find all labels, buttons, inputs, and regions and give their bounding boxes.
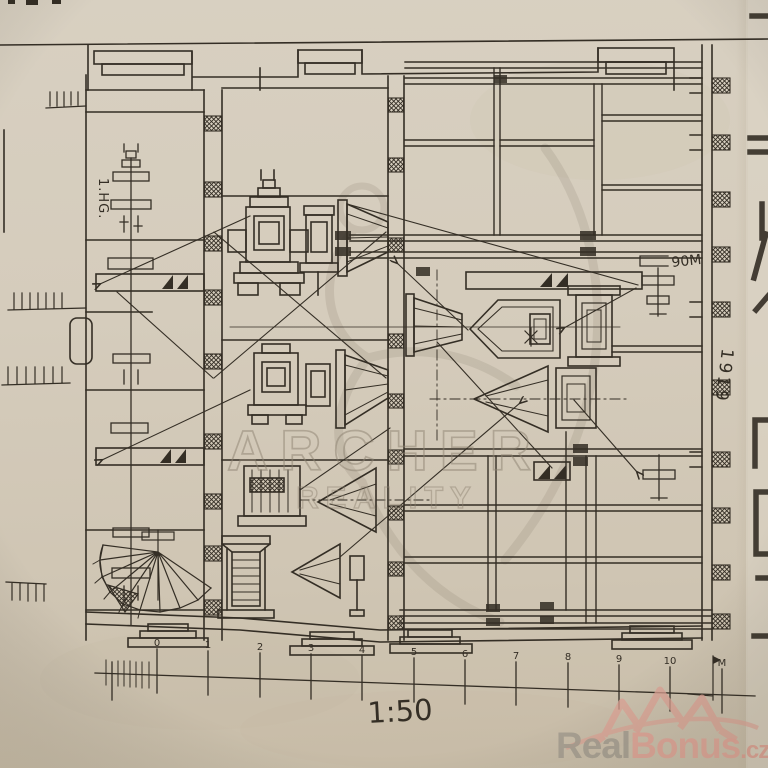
blueprint-svg: 1.HG. 90M 1919 1:50 0 1 2 3 4 5 6 7 8 9 … bbox=[0, 0, 768, 768]
photo-vignette bbox=[0, 0, 768, 768]
scanned-floor-plan-photo: 1.HG. 90M 1919 1:50 0 1 2 3 4 5 6 7 8 9 … bbox=[0, 0, 768, 768]
